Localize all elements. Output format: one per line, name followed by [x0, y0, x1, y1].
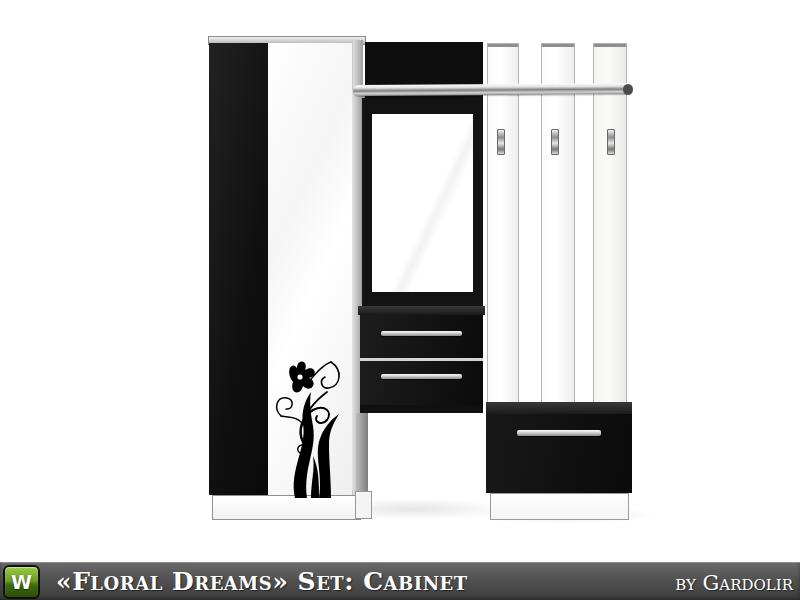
caption-bar: W «Floral Dreams» Set: Cabinet by Gardol…: [0, 562, 800, 600]
wardrobe-plinth: [212, 495, 361, 520]
drawer-upper: [360, 315, 483, 358]
coat-panel-1: [487, 43, 519, 407]
drawer-lower: [360, 361, 483, 405]
drawer-handle-lower: [381, 374, 462, 379]
tower-foot-side: [356, 413, 368, 491]
logo-letter: W: [11, 571, 32, 593]
chrome-rail-end-cap: [623, 84, 633, 95]
coat-panel-2: [541, 43, 575, 407]
wardrobe-black-door: [209, 43, 268, 495]
coat-hook-1: [497, 129, 505, 155]
drawer-unit-top: [358, 306, 485, 315]
item-title: «Floral Dreams» Set: Cabinet: [56, 566, 468, 600]
coat-hook-3: [607, 129, 615, 155]
coat-panel-top-cap: [594, 44, 626, 47]
coat-panel-top-cap: [488, 44, 518, 47]
drawer-handle-upper: [381, 331, 462, 336]
author-credit: by Gardolir: [675, 568, 793, 600]
floral-decal: [267, 352, 351, 498]
tsr-workshop-logo: W: [3, 565, 40, 599]
chrome-shelf-rail: [353, 83, 632, 96]
coat-panel-3: [593, 43, 627, 407]
bench-drawer-handle: [517, 430, 601, 436]
bench-plinth: [490, 493, 629, 520]
drawer-unit-bottom: [360, 405, 483, 413]
coat-panel-top-cap: [542, 44, 574, 47]
coat-hook-2: [551, 129, 559, 155]
furniture-preview-image: [0, 0, 800, 562]
mirror: [372, 114, 473, 292]
bench-drawer: [486, 414, 632, 493]
bench-top: [486, 402, 632, 414]
tower-foot-plinth: [355, 491, 372, 519]
